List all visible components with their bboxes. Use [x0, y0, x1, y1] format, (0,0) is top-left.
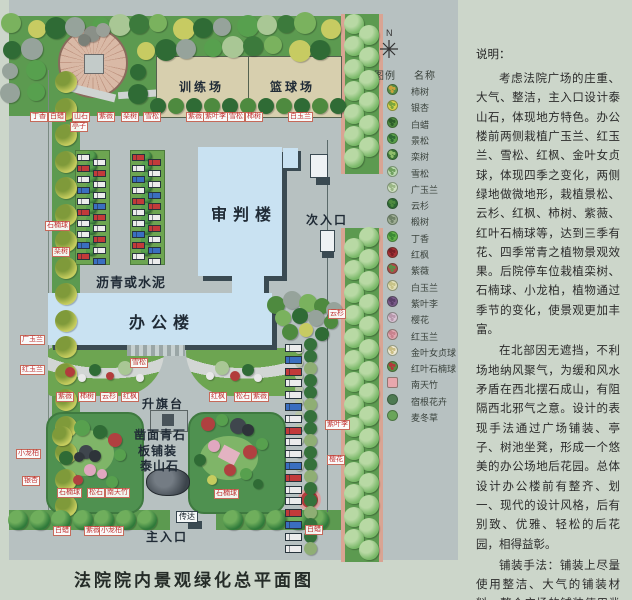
plant-label: 紫薇: [186, 112, 204, 122]
parked-car: [148, 258, 161, 265]
tree-icon: [254, 374, 262, 382]
tree-icon: [97, 469, 107, 479]
tree-icon: [264, 36, 282, 54]
secondary-gate-north-shadow: [316, 177, 330, 185]
tree-icon: [89, 364, 101, 376]
plant-label: 白蜡: [53, 526, 71, 536]
parked-car: [285, 486, 302, 494]
tree-icon: [109, 14, 131, 36]
parked-car: [77, 187, 90, 194]
tree-icon: [3, 41, 21, 59]
legend-item-label: 白玉兰: [411, 281, 438, 294]
pavilion-core: [84, 54, 104, 74]
tree-icon: [137, 42, 155, 60]
tree-icon: [193, 18, 213, 38]
tree-icon: [55, 257, 77, 279]
parked-car: [148, 159, 161, 166]
parked-car: [148, 192, 161, 199]
plant-label: 丁香: [30, 112, 48, 122]
parked-car: [148, 214, 161, 221]
plant-label: 广玉兰: [20, 335, 45, 345]
plant-label: 红玉兰: [20, 365, 45, 375]
tree-icon: [206, 372, 214, 380]
plant-label: 雪松: [130, 358, 148, 368]
tree-icon: [304, 494, 317, 507]
plant-label: 白蜡: [305, 525, 323, 535]
tree-icon: [321, 19, 341, 39]
parked-car: [93, 236, 106, 243]
tree-icon: [222, 36, 244, 58]
site-label: 主入口: [146, 528, 188, 545]
tree-icon: [108, 433, 122, 447]
legend-plant-icon: [387, 410, 398, 421]
parked-car: [285, 462, 302, 470]
parked-car: [148, 203, 161, 210]
street-sidewalk-east: [379, 14, 383, 562]
parked-car: [285, 403, 302, 411]
plant-label: 白蜡: [48, 112, 66, 122]
landscape-plan-canvas: 丁香白蜡山石紫薇栾树雪松亭子紫薇紫叶李雪松柿树白玉兰石楠球栾树广玉兰红玉兰小龙柏…: [0, 0, 632, 600]
plant-label: 樱花: [327, 455, 345, 465]
site-label: 办公楼: [129, 309, 195, 333]
site-label: 泰山石: [140, 457, 179, 474]
tree-icon: [304, 470, 317, 483]
parked-car: [93, 170, 106, 177]
tree-icon: [304, 386, 317, 399]
parked-car: [77, 253, 90, 260]
parked-car: [93, 203, 106, 210]
tree-icon: [304, 398, 317, 411]
tree-icon: [223, 510, 243, 530]
tree-icon: [55, 336, 77, 358]
legend-item-label: 云杉: [411, 199, 429, 212]
parked-car: [285, 379, 302, 387]
plant-label: 紫薇: [56, 392, 74, 402]
parked-car: [285, 450, 302, 458]
tree-icon: [277, 15, 295, 33]
parked-car: [132, 187, 145, 194]
parked-car: [132, 220, 145, 227]
parked-car: [285, 415, 302, 423]
tree-icon: [130, 64, 146, 80]
tree-icon: [304, 374, 317, 387]
notes-heading: 说明：: [476, 46, 620, 62]
legend-item-label: 景松: [411, 134, 429, 147]
tree-icon: [304, 410, 317, 423]
parked-car: [285, 356, 302, 364]
tree-icon: [242, 424, 254, 436]
legend-item-label: 红叶石楠球: [411, 362, 456, 375]
parked-car: [148, 236, 161, 243]
tree-icon: [137, 510, 157, 530]
tree-icon: [168, 98, 184, 114]
tree-icon: [304, 482, 317, 495]
tree-icon: [245, 510, 265, 530]
parked-car: [93, 181, 106, 188]
tree-icon: [129, 14, 149, 34]
tree-icon: [312, 98, 328, 114]
tree-icon: [21, 38, 43, 60]
tree-icon: [89, 450, 101, 462]
tree-icon: [315, 327, 329, 341]
tree-icon: [257, 15, 277, 35]
tree-icon: [28, 20, 46, 38]
tree-icon: [304, 542, 317, 555]
legend-item-label: 白蜡: [411, 118, 429, 131]
tree-icon: [8, 510, 28, 530]
tree-icon: [216, 414, 228, 426]
parked-car: [285, 497, 302, 505]
plant-label: 栾树: [121, 112, 139, 122]
legend-plant-icon: [387, 117, 398, 128]
tree-icon: [0, 83, 20, 103]
plant-label: 云杉: [328, 309, 346, 319]
parked-car: [93, 258, 106, 265]
parked-car: [132, 154, 145, 161]
tree-icon: [2, 63, 18, 79]
tree-icon: [304, 434, 317, 447]
parked-car: [77, 242, 90, 249]
legend-plant-icon: [387, 133, 398, 144]
legend-plant-icon: [387, 280, 398, 291]
legend-plant-icon: [387, 394, 398, 405]
legend-plant-icon: [387, 231, 398, 242]
tree-icon: [136, 374, 144, 382]
parked-car: [148, 181, 161, 188]
legend-header-name: 名称: [414, 67, 436, 82]
legend-item-label: 紫叶李: [411, 297, 438, 310]
reception-badge: 传达: [176, 511, 198, 523]
tree-icon: [310, 40, 330, 60]
plant-label: 亭子: [70, 122, 88, 132]
tree-icon: [304, 362, 317, 375]
parked-car: [148, 170, 161, 177]
site-label: 凿面青石: [134, 426, 186, 443]
legend-item-label: 南天竹: [411, 378, 438, 391]
legend-plant-icon: [387, 84, 398, 95]
legend-plant-icon: [387, 329, 398, 340]
site-label: 训练场: [179, 78, 224, 95]
tree-icon: [282, 324, 298, 340]
tree-icon: [207, 475, 217, 485]
parked-car: [77, 220, 90, 227]
legend-item-label: 椴树: [411, 215, 429, 228]
plant-label: 白玉兰: [288, 112, 313, 122]
tree-icon: [304, 506, 317, 519]
tree-icon: [292, 308, 308, 324]
tree-icon: [304, 338, 317, 351]
secondary-gate-north: [310, 154, 328, 178]
plant-label: 石楠球: [45, 221, 70, 231]
plant-label: 雪松: [143, 112, 161, 122]
plant-label: 红枫: [121, 392, 139, 402]
parked-car: [285, 344, 302, 352]
tree-icon: [84, 464, 96, 476]
site-label: 沥青或水泥: [96, 272, 166, 291]
parked-car: [93, 247, 106, 254]
legend-item-label: 柿树: [411, 85, 429, 98]
tree-icon: [213, 18, 231, 36]
tree-icon: [230, 371, 240, 381]
parked-car: [93, 214, 106, 221]
tree-icon: [52, 426, 72, 446]
legend-item-label: 丁香: [411, 232, 429, 245]
parked-car: [93, 225, 106, 232]
plant-label: 红枫: [209, 392, 227, 402]
plant-label: 柿树: [78, 392, 96, 402]
tree-icon: [243, 445, 257, 459]
tree-icon: [27, 83, 45, 101]
legend-item-label: 广玉兰: [411, 183, 438, 196]
tree-icon: [114, 449, 126, 461]
tree-icon: [30, 510, 50, 530]
plant-label: 紫薇: [251, 392, 269, 402]
site-label: 篮球场: [270, 78, 315, 95]
tree-icon: [304, 350, 317, 363]
tree-icon: [224, 464, 236, 476]
tree-icon: [304, 446, 317, 459]
tree-icon: [294, 12, 316, 34]
tree-icon: [266, 510, 286, 530]
plant-label: 石楠球: [57, 488, 82, 498]
tree-icon: [173, 18, 195, 40]
parked-car: [132, 242, 145, 249]
parked-car: [285, 474, 302, 482]
parked-car: [285, 545, 302, 553]
gatehouse: [283, 148, 298, 168]
plant-label: 石楠球: [214, 489, 239, 499]
notes-paragraph: 在北部因无遮挡，不利场地纳风聚气，为缓和风水矛盾在西北摆石成山，有阻隔西北邪气之…: [476, 342, 620, 554]
notes-panel: 说明： 考虑法院广场的庄重、大气、整洁，主入口设计泰山石，体现地方特色。办公楼前…: [458, 0, 632, 600]
tree-icon: [55, 151, 77, 173]
parked-car: [132, 176, 145, 183]
tree-icon: [256, 438, 268, 450]
parked-car: [132, 253, 145, 260]
tree-icon: [74, 452, 84, 462]
tree-icon: [78, 34, 90, 46]
legend-item-label: 雪松: [411, 167, 429, 180]
parked-car: [93, 159, 106, 166]
tree-icon: [304, 422, 317, 435]
legend-item-label: 麦冬草: [411, 411, 438, 424]
plant-label: 紫叶李: [203, 112, 228, 122]
parked-car: [77, 154, 90, 161]
legend-item-label: 红枫: [411, 248, 429, 261]
site-label: 升旗台: [142, 395, 184, 412]
tree-icon: [304, 458, 317, 471]
tree-icon: [1, 13, 21, 33]
plant-label: 柿树: [245, 112, 263, 122]
drawing-title: 法院院内景观绿化总平面图: [74, 566, 314, 591]
parked-car: [132, 198, 145, 205]
plant-label: 紫叶李: [325, 420, 350, 430]
plant-label: 云杉: [100, 392, 118, 402]
secondary-gate-south-shadow: [322, 251, 334, 258]
parked-car: [77, 231, 90, 238]
tree-icon: [45, 17, 67, 39]
tree-icon: [204, 39, 222, 57]
parked-car: [285, 391, 302, 399]
tree-icon: [201, 417, 215, 431]
tree-icon: [55, 71, 77, 93]
legend-plant-icon: [387, 377, 398, 388]
parked-car: [285, 509, 302, 517]
plant-label: 山石: [72, 112, 90, 122]
notes-paragraphs: 考虑法院广场的庄重、大气、整洁，主入口设计泰山石，体现地方特色。办公楼前两侧栽植…: [476, 70, 620, 600]
tree-icon: [55, 283, 77, 305]
parked-car: [77, 176, 90, 183]
legend-plant-icon: [387, 166, 398, 177]
parked-car: [93, 192, 106, 199]
tree-icon: [194, 454, 206, 466]
office-stairs: [127, 345, 185, 356]
parked-car: [132, 231, 145, 238]
legend-plant-icon: [387, 296, 398, 307]
legend-item-label: 红玉兰: [411, 330, 438, 343]
tree-icon: [93, 425, 107, 439]
parked-car: [132, 209, 145, 216]
plant-label: 松石: [234, 392, 252, 402]
tree-icon: [208, 440, 220, 452]
tree-icon: [55, 310, 77, 332]
tree-icon: [106, 372, 114, 380]
site-label: 次入口: [306, 211, 348, 228]
plant-label: 栾树: [52, 247, 70, 257]
tree-icon: [128, 84, 148, 104]
legend-plant-icon: [387, 182, 398, 193]
tree-icon: [73, 475, 83, 485]
flag-platform-core: [162, 414, 174, 426]
tree-icon: [106, 476, 118, 488]
tree-icon: [59, 451, 73, 465]
plant-label: 南天竹: [105, 488, 130, 498]
plant-label: 小龙柏: [99, 526, 124, 536]
plant-label: 银杏: [22, 476, 40, 486]
tree-icon: [155, 39, 177, 61]
legend-plant-icon: [387, 345, 398, 356]
tree-icon: [149, 14, 167, 32]
plant-label: 松石: [87, 488, 105, 498]
tree-icon: [237, 15, 259, 37]
site-label: 审判楼: [211, 201, 277, 225]
tree-icon: [240, 468, 252, 480]
legend-item-label: 樱花: [411, 313, 429, 326]
north-label: N: [386, 28, 393, 38]
tree-icon: [253, 479, 263, 489]
tree-icon: [243, 36, 263, 56]
tree-icon: [74, 420, 90, 436]
parked-car: [132, 165, 145, 172]
tree-icon: [289, 40, 311, 62]
tree-icon: [78, 374, 86, 382]
plant-label: 雪松: [227, 112, 245, 122]
north-arrow-icon: N: [374, 26, 404, 64]
legend-plant-icon: [387, 247, 398, 258]
legend-item-label: 金叶女贞球: [411, 346, 456, 359]
plant-label: 小龙柏: [16, 449, 41, 459]
tree-icon: [26, 60, 46, 80]
parked-car: [285, 427, 302, 435]
plant-label: 紫薇: [97, 112, 115, 122]
tree-icon: [242, 364, 254, 376]
parked-car: [285, 368, 302, 376]
tree-icon: [96, 23, 110, 37]
tree-icon: [299, 323, 313, 337]
parked-car: [77, 209, 90, 216]
tree-icon: [65, 367, 75, 377]
legend-item-label: 银杏: [411, 101, 429, 114]
parked-car: [148, 247, 161, 254]
legend-item-label: 栾树: [411, 150, 429, 163]
notes-paragraph: 铺装手法：铺装上尽量使用整洁、大气的铺装材料，整个广场的铺装使用凿面青石板，设计…: [476, 557, 620, 600]
notes-paragraph: 考虑法院广场的庄重、大气、整洁，主入口设计泰山石，体现地方特色。办公楼前两侧栽植…: [476, 70, 620, 340]
parked-car: [285, 521, 302, 529]
parked-car: [148, 225, 161, 232]
legend-item-label: 紫薇: [411, 264, 429, 277]
tree-icon: [176, 39, 196, 59]
parked-car: [77, 165, 90, 172]
secondary-gate-south: [320, 230, 335, 252]
tree-icon: [55, 177, 77, 199]
parked-car: [285, 438, 302, 446]
tree-icon: [215, 361, 229, 375]
parked-car: [285, 533, 302, 541]
legend-item-label: 宿根花卉: [411, 395, 447, 408]
parked-car: [77, 198, 90, 205]
